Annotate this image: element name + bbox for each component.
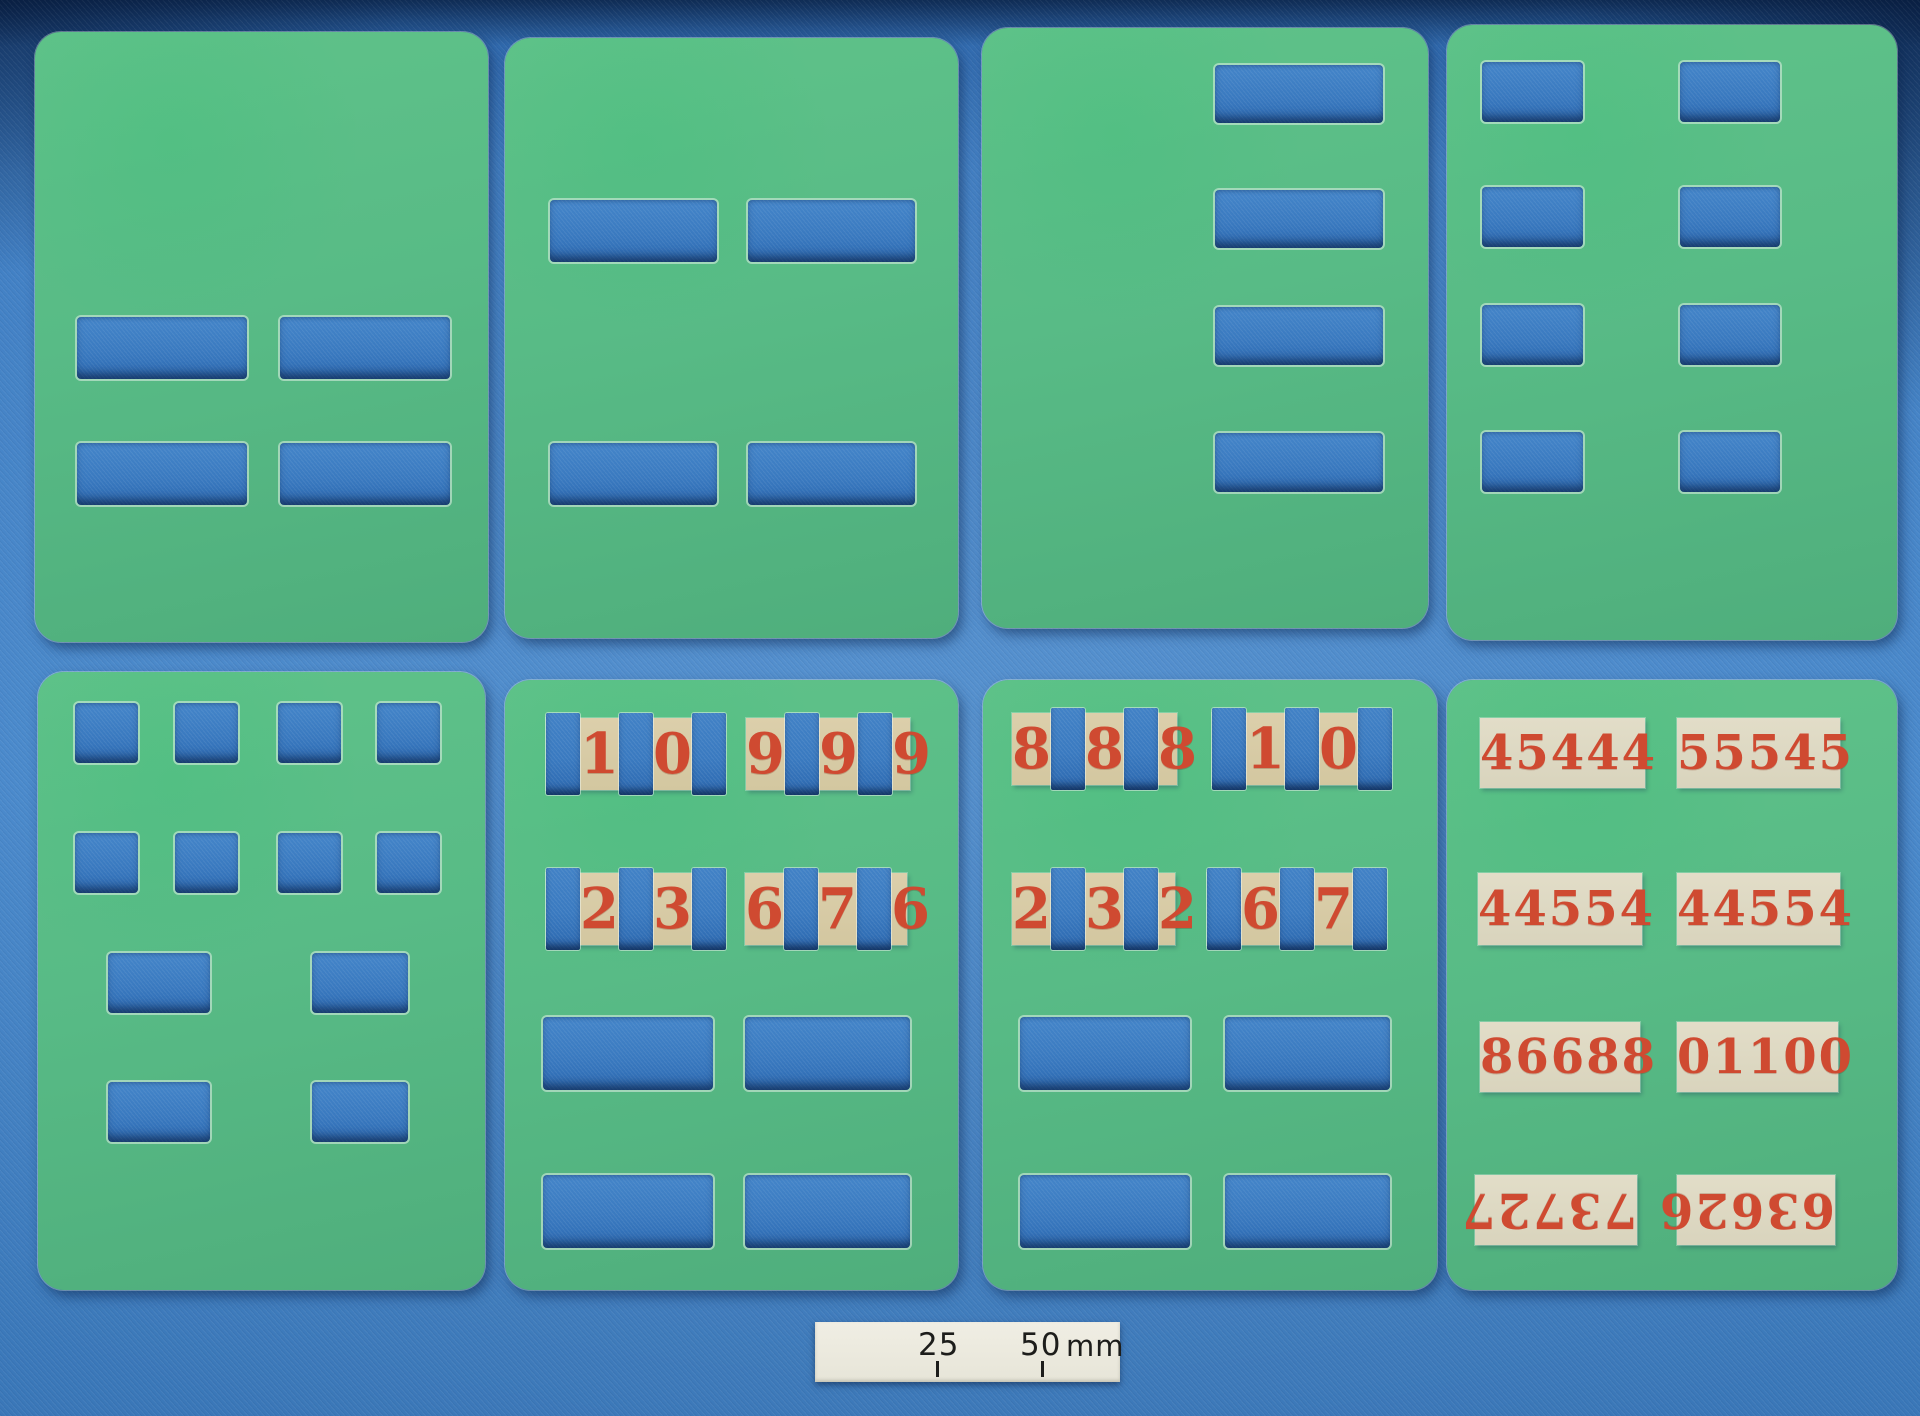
- number-strip: 73727: [1475, 1175, 1637, 1245]
- slot-cutout: [785, 713, 819, 795]
- number-strip: 55545: [1677, 718, 1840, 788]
- strip-digit: 9: [746, 726, 785, 782]
- cutout-window: [175, 833, 238, 893]
- strip-digit: 1: [580, 726, 619, 782]
- strip-digit: 0: [1319, 721, 1358, 777]
- cutout-window: [312, 1082, 408, 1142]
- cutout-window: [748, 443, 915, 505]
- strip-digit: 0: [653, 726, 692, 782]
- slot-cutout: [1212, 708, 1246, 790]
- number-card-bottom-3: 8881023267: [983, 680, 1437, 1290]
- strip-digit: 2: [580, 881, 619, 937]
- cutout-window: [1225, 1175, 1390, 1248]
- cutout-window: [1680, 187, 1780, 247]
- slot-cutout: [1285, 708, 1319, 790]
- cutout-window: [1482, 187, 1583, 247]
- cutout-window: [108, 1082, 210, 1142]
- slot-cutout: [858, 713, 892, 795]
- scale-label-50: 50: [1020, 1330, 1061, 1361]
- number-strip: 888: [1012, 713, 1177, 785]
- strip-number: 44554: [1677, 885, 1840, 933]
- slot-cutout: [1207, 868, 1241, 950]
- number-strip: 10: [546, 718, 716, 790]
- strip-number: 01100: [1677, 1033, 1838, 1081]
- strip-digit: 2: [1158, 881, 1197, 937]
- cutout-window: [175, 703, 238, 763]
- cutout-window: [278, 703, 341, 763]
- slot-cutout: [857, 868, 891, 950]
- cutout-window: [1680, 305, 1780, 365]
- stencil-card-bottom-left: [38, 672, 485, 1290]
- photo-stage: 25 50 mm 1099923676888102326745444555454…: [0, 0, 1920, 1416]
- cutout-window: [543, 1175, 713, 1248]
- cutout-window: [75, 703, 138, 763]
- scale-tick-25: [936, 1361, 939, 1377]
- cutout-window: [377, 703, 440, 763]
- strip-digit: 1: [1246, 721, 1285, 777]
- number-strip: 45444: [1480, 718, 1645, 788]
- slot-cutout: [1124, 868, 1158, 950]
- cutout-window: [1225, 1017, 1390, 1090]
- strip-digit: 9: [819, 726, 858, 782]
- number-strip: 44554: [1677, 873, 1840, 945]
- number-strip: 676: [745, 873, 907, 945]
- cutout-window: [550, 443, 717, 505]
- cutout-window: [77, 317, 247, 379]
- scale-label-25: 25: [918, 1330, 959, 1361]
- slot-cutout: [1353, 868, 1387, 950]
- strip-number: 44554: [1478, 885, 1642, 933]
- stencil-card-top-2: [505, 38, 958, 638]
- strip-digit: 7: [818, 881, 857, 937]
- slot-cutout: [1358, 708, 1392, 790]
- cutout-window: [278, 833, 341, 893]
- stencil-card-top-3: [982, 28, 1428, 628]
- number-strip: 63626: [1677, 1175, 1835, 1245]
- slot-cutout: [692, 868, 726, 950]
- cutout-window: [377, 833, 440, 893]
- slot-cutout: [619, 868, 653, 950]
- strip-digit: 6: [745, 881, 784, 937]
- cutout-window: [543, 1017, 713, 1090]
- stencil-card-top-right: [1447, 25, 1897, 640]
- cutout-window: [312, 953, 408, 1013]
- cutout-window: [280, 443, 450, 505]
- cutout-window: [1215, 307, 1383, 365]
- cutout-window: [748, 200, 915, 262]
- strip-digit: 6: [1241, 881, 1280, 937]
- slot-cutout: [1124, 708, 1158, 790]
- cutout-window: [1215, 433, 1383, 492]
- cutout-window: [280, 317, 450, 379]
- scale-tick-50: [1041, 1361, 1044, 1377]
- cutout-window: [1482, 62, 1583, 122]
- slot-cutout: [546, 868, 580, 950]
- slot-cutout: [692, 713, 726, 795]
- cutout-window: [1680, 62, 1780, 122]
- strip-digit: 7: [1314, 881, 1353, 937]
- strip-digit: 8: [1158, 721, 1197, 777]
- strip-number: 73727: [1475, 1186, 1637, 1234]
- number-strip: 10: [1212, 713, 1378, 785]
- scale-unit-label: mm: [1066, 1332, 1125, 1361]
- cutout-window: [77, 443, 247, 505]
- cutout-window: [75, 833, 138, 893]
- cutout-window: [1215, 65, 1383, 123]
- cutout-window: [1482, 305, 1583, 365]
- stencil-card-top-left: [35, 32, 488, 642]
- number-strip: 67: [1207, 873, 1375, 945]
- number-strip: 999: [746, 718, 910, 790]
- strip-digit: 3: [1085, 881, 1124, 937]
- cutout-window: [108, 953, 210, 1013]
- cutout-window: [745, 1175, 910, 1248]
- cutout-window: [1482, 432, 1583, 492]
- slot-cutout: [546, 713, 580, 795]
- slot-cutout: [1280, 868, 1314, 950]
- number-strip: 01100: [1677, 1022, 1838, 1092]
- number-strip: 44554: [1478, 873, 1642, 945]
- strip-digit: 8: [1012, 721, 1051, 777]
- strip-digit: 2: [1012, 881, 1051, 937]
- strip-digit: 6: [891, 881, 930, 937]
- number-strip: 232: [1012, 873, 1175, 945]
- cutout-window: [1680, 432, 1780, 492]
- strip-number: 45444: [1480, 729, 1645, 777]
- cutout-window: [1020, 1017, 1190, 1090]
- cutout-window: [1215, 190, 1383, 248]
- cutout-window: [550, 200, 717, 262]
- number-strip: 86688: [1480, 1022, 1640, 1092]
- strip-number: 55545: [1677, 729, 1840, 777]
- strip-digit: 3: [653, 881, 692, 937]
- strip-digit: 8: [1085, 721, 1124, 777]
- number-card-bottom-right: 4544455545445544455486688011007372763626: [1447, 680, 1897, 1290]
- cutout-window: [745, 1017, 910, 1090]
- strip-number: 86688: [1480, 1033, 1640, 1081]
- number-strip: 23: [546, 873, 716, 945]
- strip-digit: 9: [892, 726, 931, 782]
- slot-cutout: [1051, 708, 1085, 790]
- cutout-window: [1020, 1175, 1190, 1248]
- slot-cutout: [1051, 868, 1085, 950]
- strip-number: 63626: [1677, 1186, 1835, 1234]
- slot-cutout: [784, 868, 818, 950]
- scale-bar: 25 50 mm: [815, 1322, 1120, 1382]
- number-card-bottom-2: 1099923676: [505, 680, 958, 1290]
- slot-cutout: [619, 713, 653, 795]
